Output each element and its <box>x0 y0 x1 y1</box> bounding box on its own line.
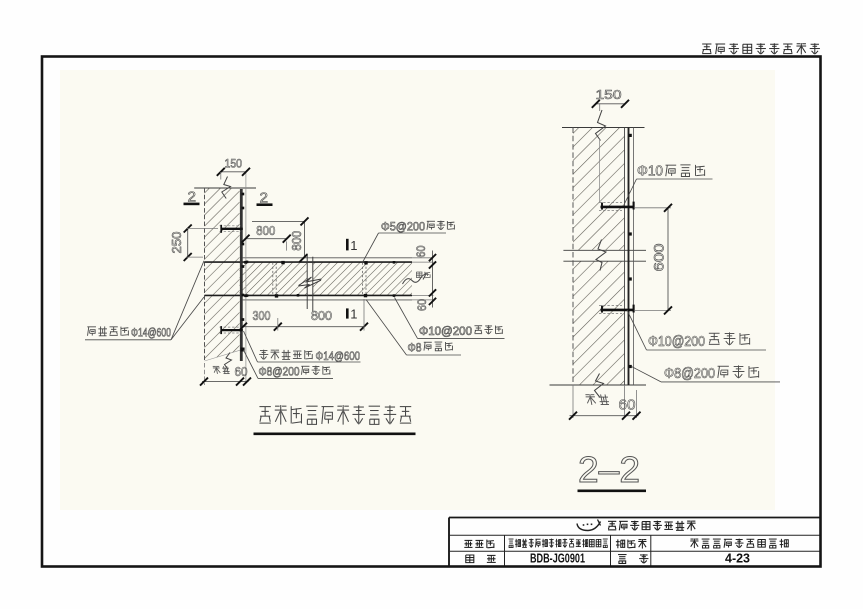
svg-text:60: 60 <box>414 245 428 257</box>
svg-text:150: 150 <box>596 87 622 102</box>
svg-text:800: 800 <box>289 231 304 251</box>
svg-text:300: 300 <box>253 308 271 323</box>
svg-text:60: 60 <box>415 299 429 311</box>
svg-text:600: 600 <box>652 244 667 272</box>
svg-text:Φ8@200: Φ8@200 <box>664 365 715 382</box>
svg-text:Φ8@200: Φ8@200 <box>259 365 300 379</box>
svg-text:Φ8: Φ8 <box>408 341 422 355</box>
svg-text:2–2: 2–2 <box>578 449 640 490</box>
svg-text:1: 1 <box>350 306 357 321</box>
svg-text:60: 60 <box>235 364 248 379</box>
svg-text:Φ10@200: Φ10@200 <box>419 326 472 338</box>
svg-text:4-23: 4-23 <box>725 552 750 566</box>
svg-text:Φ14@600: Φ14@600 <box>131 328 171 340</box>
svg-text:800: 800 <box>256 223 275 238</box>
svg-text:800: 800 <box>311 308 332 323</box>
svg-text:Φ5@200: Φ5@200 <box>381 220 425 234</box>
svg-text:Φ14@600: Φ14@600 <box>316 349 361 363</box>
svg-text:BDB-JG0901: BDB-JG0901 <box>530 552 585 566</box>
svg-text:60: 60 <box>619 397 636 414</box>
svg-text:250: 250 <box>169 232 184 254</box>
svg-text:Φ10: Φ10 <box>637 164 663 180</box>
svg-text:150: 150 <box>225 157 243 171</box>
svg-text:Φ10@200: Φ10@200 <box>648 333 705 350</box>
svg-text:1: 1 <box>350 238 357 253</box>
